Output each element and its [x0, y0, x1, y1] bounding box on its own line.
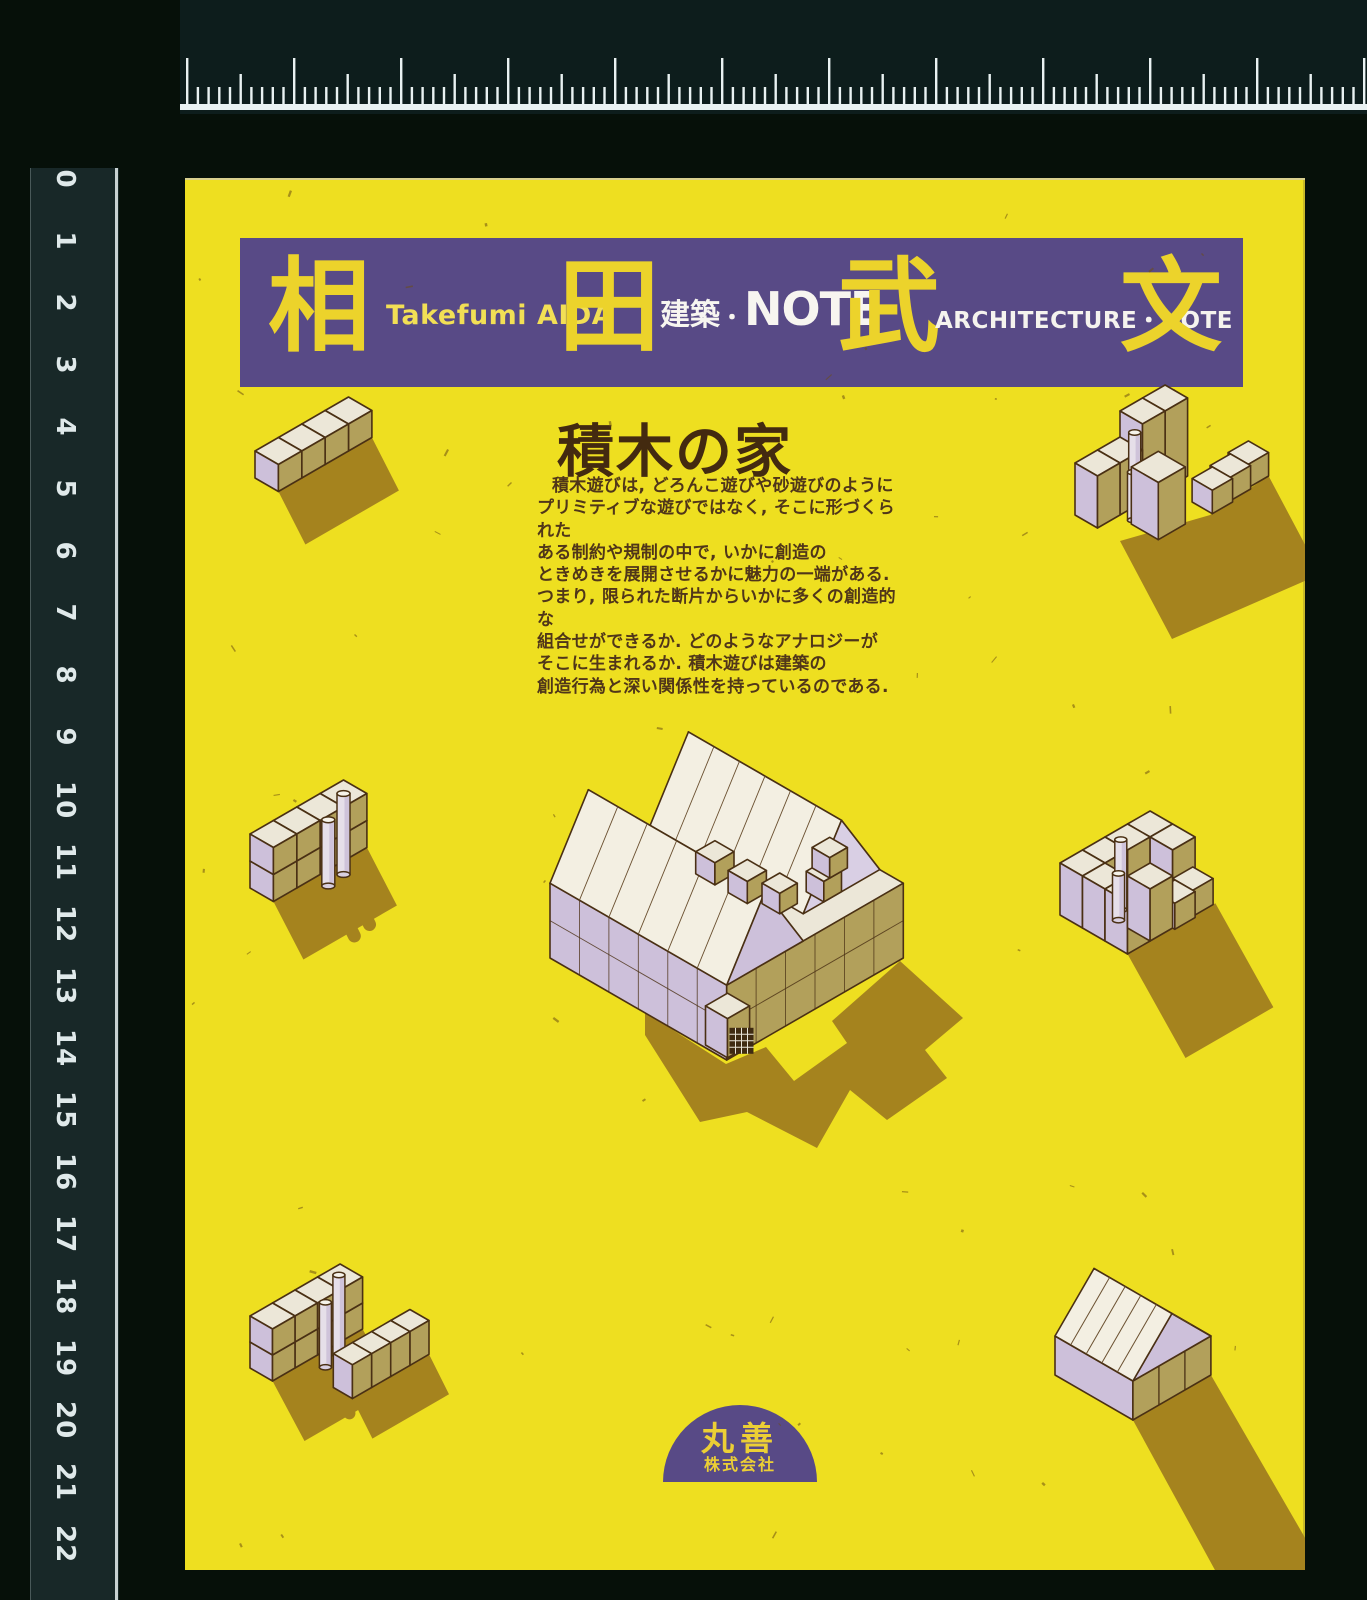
- ruler-number: 11: [50, 843, 80, 879]
- block-house-axonometric-illustration: [495, 650, 975, 1210]
- ruler-number: 17: [50, 1215, 80, 1251]
- ruler-number: 9: [50, 719, 80, 755]
- ruler-edge-highlight: [115, 168, 118, 1600]
- ruler-number: 4: [50, 409, 80, 445]
- book-cover: 相 Takefumi AIDA 田 建築 ・ NOTE 武 ARCHITECTU…: [185, 178, 1305, 1570]
- body-line: プリミティブな遊びではなく, そこに形づくられた: [537, 497, 897, 542]
- ruler-number: 1: [50, 223, 80, 259]
- ruler-number: 20: [50, 1401, 80, 1437]
- author-kanji-4: 文: [1120, 256, 1222, 358]
- vertical-plastic-ruler: 012345678910111213141516171819202122: [30, 168, 119, 1600]
- ruler-number: 22: [50, 1525, 80, 1561]
- ruler-number: 0: [50, 161, 80, 197]
- ruler-number: 15: [50, 1091, 80, 1127]
- ruler-number: 7: [50, 595, 80, 631]
- photo-canvas: 012345678910111213141516171819202122 相 T…: [0, 0, 1367, 1600]
- ruler-number: 12: [50, 905, 80, 941]
- author-kanji-1: 相: [268, 256, 370, 358]
- ruler-number: 6: [50, 533, 80, 569]
- ruler-number: 21: [50, 1463, 80, 1499]
- publisher-suffix: 株式会社: [663, 1455, 817, 1474]
- author-kanji-3: 武: [838, 256, 940, 358]
- ruler-number: 14: [50, 1029, 80, 1065]
- ruler-number: 19: [50, 1339, 80, 1375]
- ruler-number: 8: [50, 657, 80, 693]
- body-line: ときめきを展開させるかに魅力の一端がある.: [537, 564, 897, 586]
- ruler-number: 2: [50, 285, 80, 321]
- ruler-number: 5: [50, 471, 80, 507]
- ruler-number: 16: [50, 1153, 80, 1189]
- horizontal-steel-ruler: [180, 0, 1367, 114]
- ruler-number: 10: [50, 781, 80, 817]
- block-row-illustration: [225, 368, 440, 573]
- body-line: つまり, 限られた断片からいかに多くの創造的な: [537, 586, 897, 631]
- ruler-tick-marks: [180, 0, 1367, 114]
- publisher-mark: 丸善 株式会社: [663, 1405, 817, 1482]
- ruler-number: 18: [50, 1277, 80, 1313]
- body-line: 積木遊びは, どろんこ遊びや砂遊びのように: [537, 475, 897, 497]
- body-line: ある制約や規制の中で, いかに創造の: [537, 542, 897, 564]
- series-jp-prefix: 建築: [660, 290, 720, 334]
- series-jp-dot: ・: [721, 300, 743, 332]
- block-courtyard-illustration: [1030, 775, 1275, 1080]
- block-wall-cylinders-row-illustration: [222, 1233, 457, 1538]
- ruler-number: 3: [50, 347, 80, 383]
- ruler-number: 13: [50, 967, 80, 1003]
- block-gable-house-illustration: [1030, 1215, 1300, 1570]
- block-wall-cylinders-illustration: [222, 758, 442, 1038]
- author-kanji-2: 田: [558, 256, 660, 358]
- publisher-name: 丸善: [663, 1422, 817, 1455]
- block-corner-columns-illustration: [1040, 365, 1300, 680]
